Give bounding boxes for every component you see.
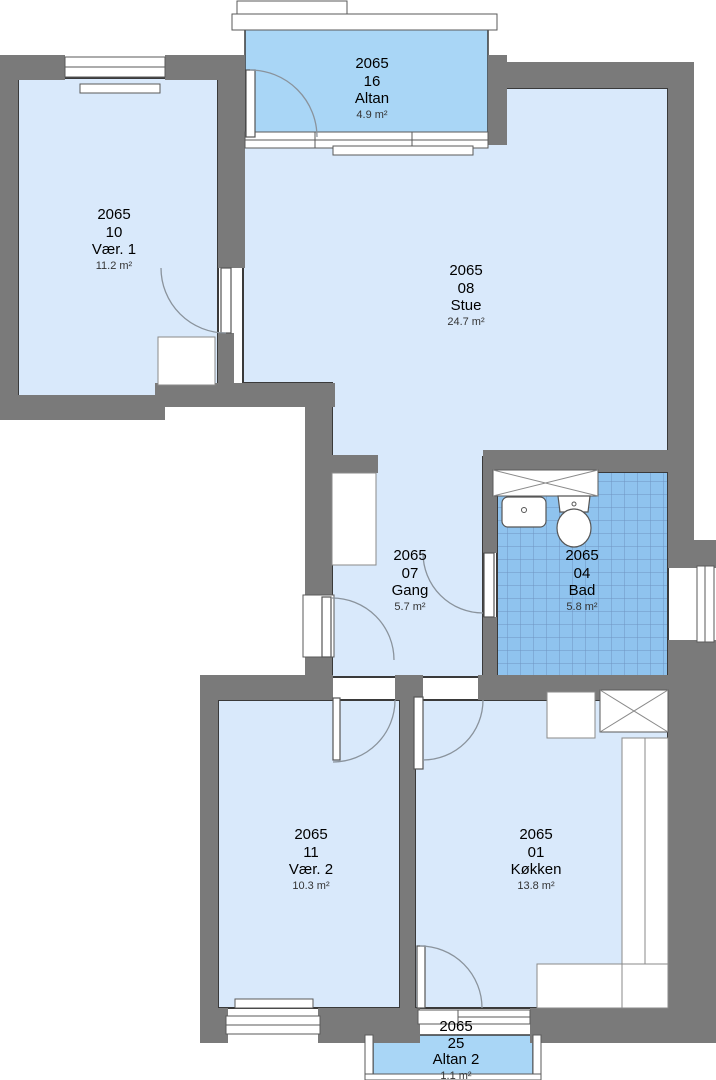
room-area: 1.1 m² bbox=[391, 1070, 521, 1080]
railing-icon bbox=[237, 1, 347, 15]
label-koekken: 2065 01 Køkken 13.8 m² bbox=[471, 826, 601, 893]
door-leaf bbox=[484, 553, 494, 617]
label-bad: 2065 04 Bad 5.8 m² bbox=[517, 547, 647, 614]
wall-segment bbox=[488, 62, 668, 88]
railing-icon bbox=[533, 1035, 541, 1080]
wall-segment bbox=[200, 1008, 228, 1043]
cabinet-icon bbox=[547, 692, 595, 738]
label-altan-2: 2065 25 Altan 2 1.1 m² bbox=[391, 1019, 521, 1080]
room-estate: 2065 bbox=[307, 55, 437, 73]
room-unit: 16 bbox=[307, 73, 437, 91]
floor-plan-drawing bbox=[0, 0, 716, 1080]
wall-segment bbox=[400, 700, 415, 1008]
wall-segment bbox=[200, 675, 218, 1043]
room-name: Altan bbox=[307, 90, 437, 108]
room-unit: 01 bbox=[471, 844, 601, 862]
door-leaf bbox=[333, 698, 340, 760]
room-unit: 07 bbox=[345, 565, 475, 583]
wall-segment bbox=[0, 395, 165, 420]
room-unit: 08 bbox=[401, 280, 531, 298]
room-name: Gang bbox=[345, 582, 475, 600]
room-unit: 04 bbox=[517, 565, 647, 583]
wardrobe-icon bbox=[158, 337, 215, 385]
door-leaf bbox=[221, 268, 231, 333]
room-name: Vær. 1 bbox=[49, 241, 179, 259]
railing-icon bbox=[232, 14, 497, 30]
wall-segment bbox=[218, 333, 234, 385]
wall-segment bbox=[200, 675, 333, 700]
wall-segment bbox=[668, 640, 716, 1043]
room-area: 5.8 m² bbox=[517, 601, 647, 614]
wall-segment bbox=[668, 62, 694, 540]
room-area: 5.7 m² bbox=[345, 601, 475, 614]
room-estate: 2065 bbox=[49, 206, 179, 224]
floor-plan: 2065 16 Altan 4.9 m² 2065 10 Vær. 1 11.2… bbox=[0, 0, 716, 1080]
label-altan: 2065 16 Altan 4.9 m² bbox=[307, 55, 437, 122]
label-vaer-1: 2065 10 Vær. 1 11.2 m² bbox=[49, 206, 179, 273]
toilet-bowl bbox=[557, 509, 591, 547]
room-estate: 2065 bbox=[471, 826, 601, 844]
wall-segment bbox=[165, 55, 218, 80]
wall-segment bbox=[483, 450, 668, 472]
radiator-icon bbox=[333, 146, 473, 155]
room-estate: 2065 bbox=[345, 547, 475, 565]
room-estate: 2065 bbox=[391, 1019, 521, 1036]
room-estate: 2065 bbox=[246, 826, 376, 844]
wall-segment bbox=[483, 617, 497, 680]
room-name: Vær. 2 bbox=[246, 861, 376, 879]
label-vaer-2: 2065 11 Vær. 2 10.3 m² bbox=[246, 826, 376, 893]
room-name: Køkken bbox=[471, 861, 601, 879]
railing-icon bbox=[365, 1035, 373, 1080]
door-leaf bbox=[414, 697, 423, 769]
wall-segment bbox=[395, 675, 423, 700]
room-area: 24.7 m² bbox=[401, 316, 531, 329]
room-name: Stue bbox=[401, 297, 531, 315]
room-area: 4.9 m² bbox=[307, 109, 437, 122]
radiator-icon bbox=[235, 999, 313, 1008]
room-area: 13.8 m² bbox=[471, 880, 601, 893]
room-estate: 2065 bbox=[517, 547, 647, 565]
room-estate: 2065 bbox=[401, 262, 531, 280]
wall-segment bbox=[0, 55, 18, 405]
room-unit: 11 bbox=[246, 844, 376, 862]
room-name: Altan 2 bbox=[391, 1052, 521, 1069]
door-leaf bbox=[417, 946, 425, 1008]
wall-segment bbox=[305, 383, 332, 597]
room-unit: 25 bbox=[391, 1036, 521, 1053]
room-area: 10.3 m² bbox=[246, 880, 376, 893]
radiator-icon bbox=[80, 84, 160, 93]
wall-segment bbox=[305, 455, 378, 473]
label-stue: 2065 08 Stue 24.7 m² bbox=[401, 262, 531, 329]
door-leaf bbox=[322, 597, 331, 657]
room-area: 11.2 m² bbox=[49, 260, 179, 273]
wall-segment bbox=[218, 55, 245, 268]
room-name: Bad bbox=[517, 582, 647, 600]
door-leaf bbox=[246, 70, 255, 137]
kitchen-counter-icon bbox=[537, 964, 668, 1008]
label-gang: 2065 07 Gang 5.7 m² bbox=[345, 547, 475, 614]
wall-segment bbox=[668, 540, 716, 568]
room-unit: 10 bbox=[49, 224, 179, 242]
